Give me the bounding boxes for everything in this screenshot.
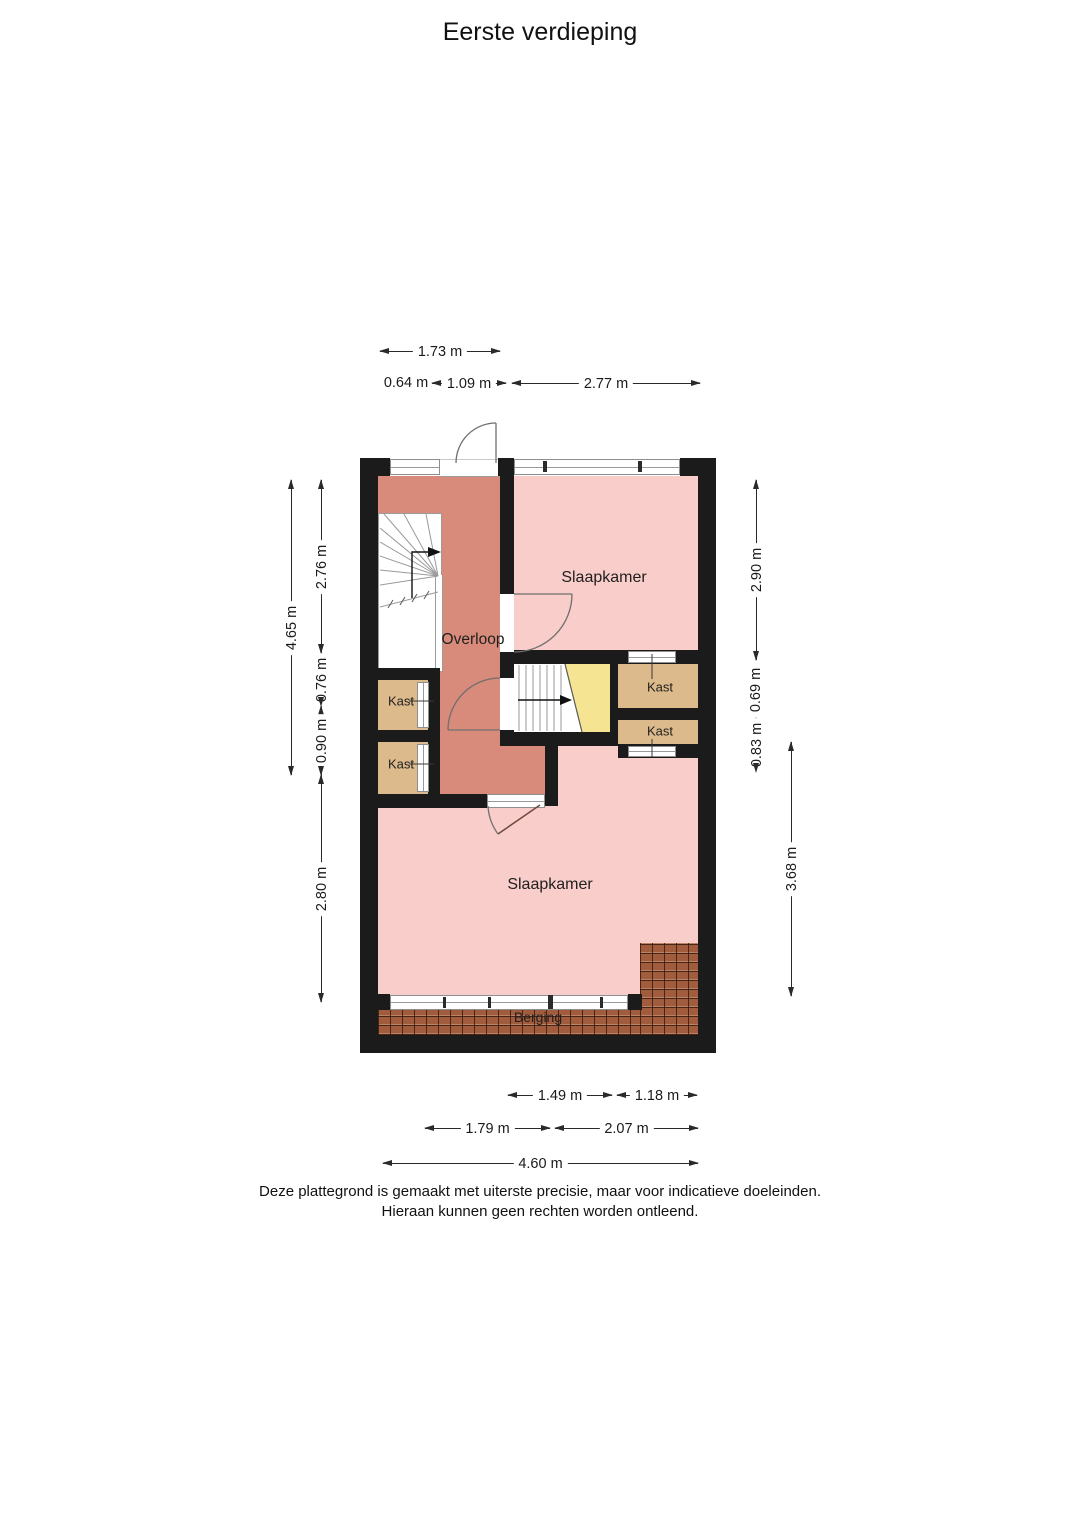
window-mullion-tick (638, 461, 642, 472)
room-label-kast-left-2: Kast (388, 757, 414, 772)
dim-bottom-4-60: 4.60 m (383, 1163, 698, 1164)
dim-left-4-65: 4.65 m (291, 480, 292, 775)
room-label-berging: Berging (514, 1009, 562, 1025)
dim-bottom-1-18: 1.18 m (617, 1095, 697, 1096)
window-mullion-tick (443, 997, 446, 1008)
dim-left-2-76: 2.76 m (321, 480, 322, 653)
dim-right-0-83: 0.83 m (756, 718, 757, 772)
dim-bottom-2-07: 2.07 m (555, 1128, 698, 1129)
closet-right-2-door (628, 746, 676, 757)
dim-left-0-76: 0.76 m (321, 653, 322, 706)
closet-left-2-door (417, 744, 429, 792)
wall-bottom-window-pier (628, 994, 642, 1010)
dim-left-2-80: 2.80 m (321, 775, 322, 1002)
wall-h5-kastleft-divider (378, 730, 440, 742)
wall-kast-right-divider (618, 708, 698, 720)
attic-stairs-treads (512, 664, 565, 732)
room-label-slaapkamer-top: Slaapkamer (561, 569, 646, 587)
room-label-overloop: Overloop (442, 631, 505, 649)
roof-tiles-block (640, 943, 698, 1035)
window-mullion-tick (488, 997, 491, 1008)
wall-v1-upper (500, 476, 514, 594)
dim-top-1-09: 1.09 m (432, 383, 506, 384)
window-mullion-tick (600, 997, 603, 1008)
dim-right-0-69: 0.69 m (748, 668, 764, 712)
stairs-down-box (378, 513, 442, 671)
dim-top-2-77: 2.77 m (512, 383, 700, 384)
room-label-kast-left-1: Kast (388, 694, 414, 709)
wall-h3-overloop-bottom (378, 794, 487, 808)
closet-left-1-door (417, 682, 429, 728)
wall-top-pier (498, 458, 514, 476)
wall-outer-left (360, 458, 378, 1053)
door-overloop-bedroom2-threshold (487, 794, 545, 808)
closet-right-1-door (628, 651, 676, 663)
wall-bottom-window-stub-left (378, 994, 390, 1010)
wall-top-left-corner (360, 458, 390, 476)
wall-h2-enclosure-bottom (500, 732, 618, 746)
dim-bottom-1-79: 1.79 m (425, 1128, 550, 1129)
room-label-slaapkamer-bottom: Slaapkamer (507, 876, 592, 894)
door-opening-overloop-attic (500, 678, 514, 730)
wall-top-right-corner (680, 458, 716, 476)
dim-right-2-90: 2.90 m (756, 480, 757, 660)
wall-outer-right (698, 458, 716, 1053)
door-opening-exterior-top (440, 459, 498, 477)
disclaimer-line-1: Deze plattegrond is gemaakt met uiterste… (0, 1183, 1080, 1200)
dim-left-0-90: 0.90 m (321, 706, 322, 775)
dim-top-0-64: 0.64 m (384, 375, 428, 391)
window-top-right (514, 459, 680, 475)
window-bottom (390, 995, 628, 1010)
wall-outer-bottom (360, 1035, 716, 1053)
page-title: Eerste verdieping (0, 18, 1080, 47)
floor-plan-page: Eerste verdieping (0, 0, 1080, 1526)
room-label-kast-right-1: Kast (647, 680, 673, 695)
dim-top-1-73: 1.73 m (380, 351, 500, 352)
window-mullion-tick (543, 461, 547, 472)
dim-right-3-68: 3.68 m (791, 742, 792, 996)
wall-v2 (545, 744, 558, 806)
disclaimer-line-2: Hieraan kunnen geen rechten worden ontle… (0, 1203, 1080, 1220)
room-label-kast-right-2: Kast (647, 724, 673, 739)
dim-bottom-1-49: 1.49 m (508, 1095, 612, 1096)
attic-stairs-landing (565, 664, 610, 732)
window-mullion-tick (548, 995, 553, 1009)
stairs-down-stringer (435, 575, 443, 671)
window-top-left (390, 459, 440, 475)
